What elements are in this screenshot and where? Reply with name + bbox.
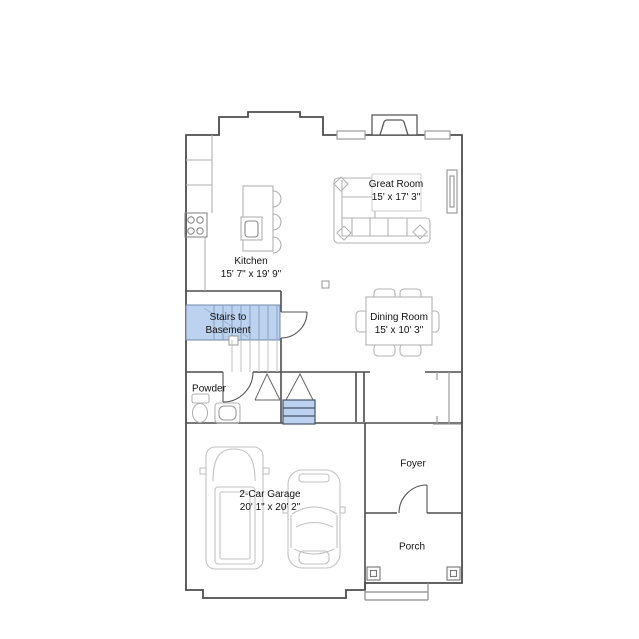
bar-stool-icon xyxy=(273,191,281,253)
foyer-name: Foyer xyxy=(400,458,426,471)
newel-post xyxy=(229,336,238,345)
great-room-name: Great Room xyxy=(369,178,423,191)
porch-name: Porch xyxy=(399,541,425,554)
garage-name: 2-Car Garage xyxy=(239,488,300,501)
window-icon-top-right xyxy=(425,131,450,139)
closet-doors-icon xyxy=(255,374,313,400)
entry-steps-highlight[interactable] xyxy=(283,400,315,424)
front-door-swing-icon xyxy=(399,485,427,513)
fireplace-icon xyxy=(372,115,417,135)
toilet-icon xyxy=(192,394,209,423)
powder-door-swing-icon xyxy=(223,372,253,402)
porch-post-icon-left xyxy=(367,567,380,580)
window-icon-foyer xyxy=(433,372,461,424)
porch-label: Porch xyxy=(399,541,425,554)
car-icon xyxy=(283,470,345,568)
dining-room-dims: 15' x 10' 3" xyxy=(370,324,428,337)
stairs-label-line1: Stairs to xyxy=(205,311,250,324)
dining-room-name: Dining Room xyxy=(370,311,428,324)
porch-steps xyxy=(365,583,428,600)
entry-steps xyxy=(283,400,315,424)
stairs-label: Stairs to Basement xyxy=(205,311,250,337)
foyer-label: Foyer xyxy=(400,458,426,471)
cooktop-icon xyxy=(185,213,207,237)
kitchen-label: Kitchen 15' 7" x 19' 9" xyxy=(221,255,281,281)
porch-post-icon-right xyxy=(447,567,460,580)
garage-dims: 20' 1" x 20' 2" xyxy=(239,501,300,514)
stair-treads-lower xyxy=(232,340,277,372)
window-icon-right-wall xyxy=(447,170,457,213)
floor-plan-canvas: Kitchen 15' 7" x 19' 9" Great Room 15' x… xyxy=(0,0,639,639)
vanity-sink-icon xyxy=(215,403,240,423)
powder-label: Powder xyxy=(192,383,226,396)
island-sink-icon xyxy=(241,217,262,240)
kitchen-dims: 15' 7" x 19' 9" xyxy=(221,268,281,281)
stairs-label-line2: Basement xyxy=(205,324,250,337)
powder-name: Powder xyxy=(192,383,226,396)
kitchen-name: Kitchen xyxy=(221,255,281,268)
great-room-dims: 15' x 17' 3" xyxy=(369,191,423,204)
garage-label: 2-Car Garage 20' 1" x 20' 2" xyxy=(239,488,300,514)
floor-marker xyxy=(322,281,329,288)
stair-door-swing-icon xyxy=(281,312,307,338)
window-icon-top-left xyxy=(337,131,365,139)
great-room-label: Great Room 15' x 17' 3" xyxy=(369,178,423,204)
floor-plan-drawing xyxy=(0,0,639,639)
dining-room-label: Dining Room 15' x 10' 3" xyxy=(370,311,428,337)
